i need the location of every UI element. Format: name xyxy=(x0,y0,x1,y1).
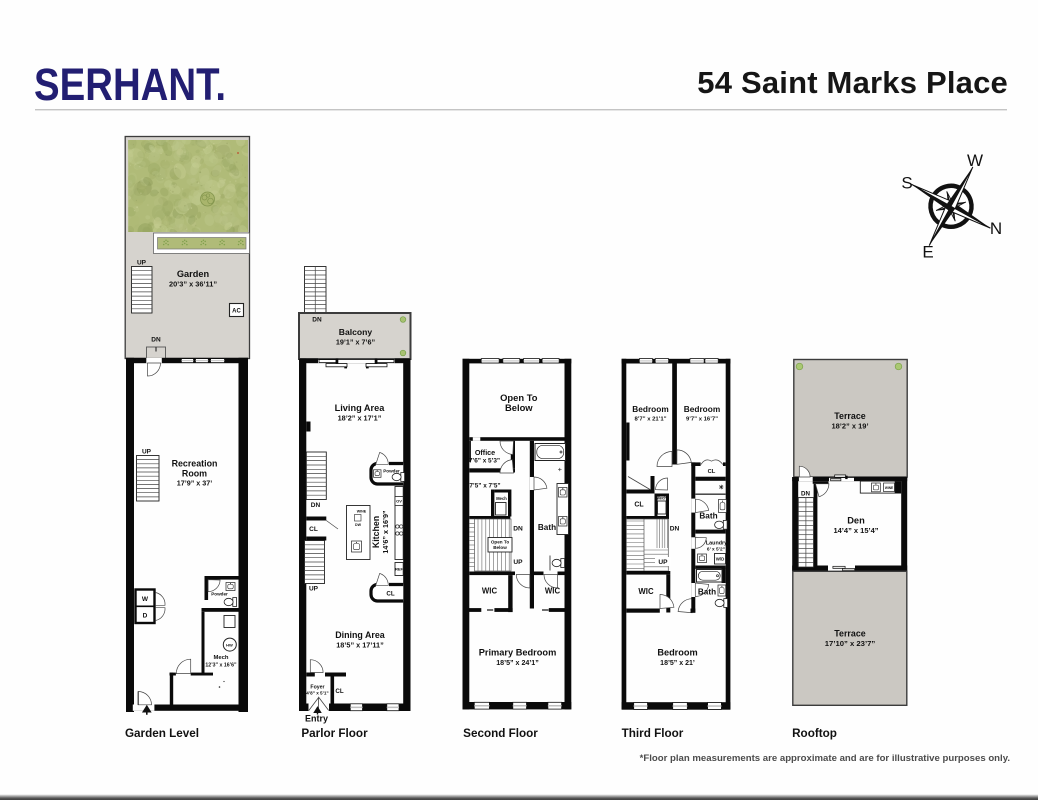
svg-text:Parlor Floor: Parlor Floor xyxy=(301,727,368,740)
svg-text:UP: UP xyxy=(658,559,668,566)
svg-text:20’3” x 36’11”: 20’3” x 36’11” xyxy=(169,280,217,289)
svg-text:14’4” x 15’4”: 14’4” x 15’4” xyxy=(833,526,878,535)
svg-text:Garden: Garden xyxy=(177,269,210,279)
svg-text:CL: CL xyxy=(309,526,318,533)
svg-text:CL: CL xyxy=(708,469,716,475)
svg-text:WIC: WIC xyxy=(545,587,561,596)
svg-text:WIC: WIC xyxy=(482,587,498,596)
svg-text:7’5” x 7’5”: 7’5” x 7’5” xyxy=(469,483,500,490)
svg-text:HW: HW xyxy=(226,642,233,647)
svg-text:N: N xyxy=(990,219,1002,238)
svg-text:D: D xyxy=(143,613,148,620)
svg-text:DN: DN xyxy=(513,526,523,533)
svg-text:DN: DN xyxy=(312,317,322,324)
svg-text:SERHANT.: SERHANT. xyxy=(34,59,226,110)
svg-text:UP: UP xyxy=(309,586,319,593)
svg-text:UP: UP xyxy=(513,559,523,566)
svg-text:18’5” x 21’: 18’5” x 21’ xyxy=(660,660,695,667)
svg-text:UP: UP xyxy=(142,449,152,456)
svg-text:W: W xyxy=(142,596,149,603)
svg-text:12’3” x 16’6”: 12’3” x 16’6” xyxy=(205,663,237,669)
svg-text:W: W xyxy=(967,151,983,170)
svg-text:Laundry: Laundry xyxy=(706,541,727,547)
svg-text:CL: CL xyxy=(634,502,644,509)
svg-text:DN: DN xyxy=(151,337,161,344)
svg-text:Terrace: Terrace xyxy=(834,629,865,639)
svg-text:Balcony: Balcony xyxy=(339,327,373,337)
svg-text:Mech: Mech xyxy=(496,496,507,501)
svg-text:CL: CL xyxy=(335,688,343,695)
svg-text:Room: Room xyxy=(182,469,207,479)
svg-text:Bedroom: Bedroom xyxy=(657,648,697,658)
svg-text:18’2” x 17’1”: 18’2” x 17’1” xyxy=(338,414,382,423)
svg-text:18’2” x 19’: 18’2” x 19’ xyxy=(831,422,868,431)
svg-text:DW: DW xyxy=(355,523,362,527)
svg-text:CL: CL xyxy=(386,591,394,598)
svg-text:17’9” x 37’: 17’9” x 37’ xyxy=(177,479,213,488)
svg-text:OV: OV xyxy=(396,499,402,504)
svg-text:Kitchen: Kitchen xyxy=(371,516,381,548)
svg-text:17’10” x 23’7”: 17’10” x 23’7” xyxy=(825,639,876,648)
svg-text:S: S xyxy=(901,174,912,193)
svg-text:Recreation: Recreation xyxy=(172,459,218,469)
svg-text:Garden Level: Garden Level xyxy=(125,727,199,740)
svg-text:Bath: Bath xyxy=(538,523,556,532)
svg-text:8’7” x 21’1”: 8’7” x 21’1” xyxy=(634,417,666,423)
svg-text:9’7” x 16’7”: 9’7” x 16’7” xyxy=(686,417,718,423)
svg-text:14’6” x 16’9”: 14’6” x 16’9” xyxy=(381,510,390,554)
svg-text:Bath: Bath xyxy=(698,588,716,597)
svg-text:UP: UP xyxy=(137,260,147,267)
svg-text:WIC: WIC xyxy=(638,587,654,596)
svg-text:W/D: W/D xyxy=(716,556,725,561)
svg-text:Primary Bedroom: Primary Bedroom xyxy=(479,648,557,658)
svg-text:Entry: Entry xyxy=(305,714,328,724)
svg-text:Terrace: Terrace xyxy=(834,411,865,421)
svg-text:WINE: WINE xyxy=(885,486,893,490)
svg-text:Powder: Powder xyxy=(383,469,400,474)
svg-text:WINE: WINE xyxy=(357,510,367,514)
svg-text:4’8” x 5’1”: 4’8” x 5’1” xyxy=(306,691,328,696)
svg-text:Dining Area: Dining Area xyxy=(335,630,385,640)
svg-text:Living Area: Living Area xyxy=(335,403,386,413)
svg-text:*Floor plan measurements are a: *Floor plan measurements are approximate… xyxy=(640,753,1010,764)
svg-text:Mech: Mech xyxy=(656,495,667,500)
svg-text:19’1” x 7’6”: 19’1” x 7’6” xyxy=(336,338,376,347)
svg-text:Den: Den xyxy=(847,516,865,526)
svg-text:DN: DN xyxy=(801,491,810,498)
svg-text:E: E xyxy=(922,243,933,262)
svg-text:Bedroom: Bedroom xyxy=(684,404,720,414)
svg-text:Third Floor: Third Floor xyxy=(622,727,684,740)
svg-text:Open To: Open To xyxy=(491,540,509,545)
svg-text:Bedroom: Bedroom xyxy=(632,404,668,414)
svg-text:6’ x 5’2”: 6’ x 5’2” xyxy=(707,547,726,553)
svg-text:Below: Below xyxy=(493,545,507,550)
svg-text:18’5” x 24’1”: 18’5” x 24’1” xyxy=(496,659,539,667)
svg-text:54 Saint Marks Place: 54 Saint Marks Place xyxy=(697,65,1008,100)
svg-text:Mech: Mech xyxy=(213,655,228,661)
svg-text:AC: AC xyxy=(232,309,241,315)
svg-text:Office: Office xyxy=(475,448,495,457)
svg-text:Rooftop: Rooftop xyxy=(792,727,837,740)
svg-text:Below: Below xyxy=(505,402,533,413)
svg-text:Bath: Bath xyxy=(699,512,717,521)
svg-text:Second Floor: Second Floor xyxy=(463,727,538,740)
svg-text:18’5” x 17’11”: 18’5” x 17’11” xyxy=(336,641,384,650)
svg-text:DN: DN xyxy=(670,526,680,533)
svg-text:DN: DN xyxy=(311,502,321,509)
svg-text:Powder: Powder xyxy=(211,592,228,597)
svg-text:REF: REF xyxy=(395,568,403,572)
svg-text:7’6” x 5’3”: 7’6” x 5’3” xyxy=(469,458,500,465)
